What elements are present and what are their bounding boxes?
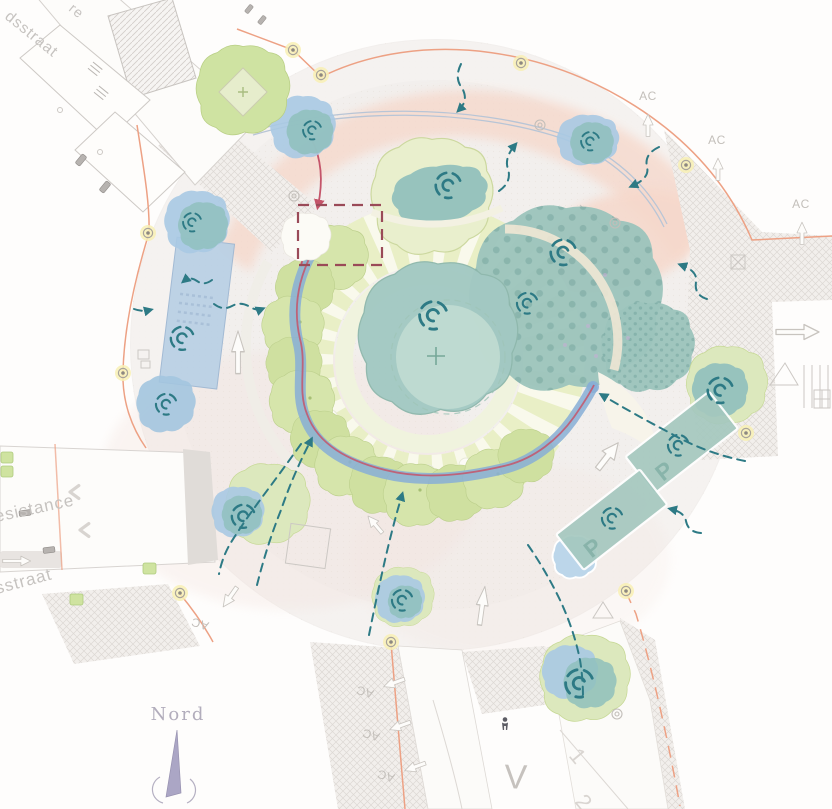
compass-label: Nord <box>151 704 206 725</box>
compass-needle <box>166 730 181 797</box>
svg-text:AC: AC <box>792 197 810 211</box>
site-plan-map: P P <box>0 0 832 809</box>
site-plan-svg: P P <box>0 0 832 809</box>
road-letter-v: V <box>504 758 528 797</box>
svg-text:AC: AC <box>639 89 657 103</box>
pedestrian-icon <box>502 717 508 730</box>
svg-text:AC: AC <box>708 133 726 147</box>
ac-marker: AC <box>708 133 726 180</box>
svg-text:AC: AC <box>189 615 210 634</box>
central-canopy <box>358 262 517 415</box>
compass-north: Nord <box>151 704 206 803</box>
